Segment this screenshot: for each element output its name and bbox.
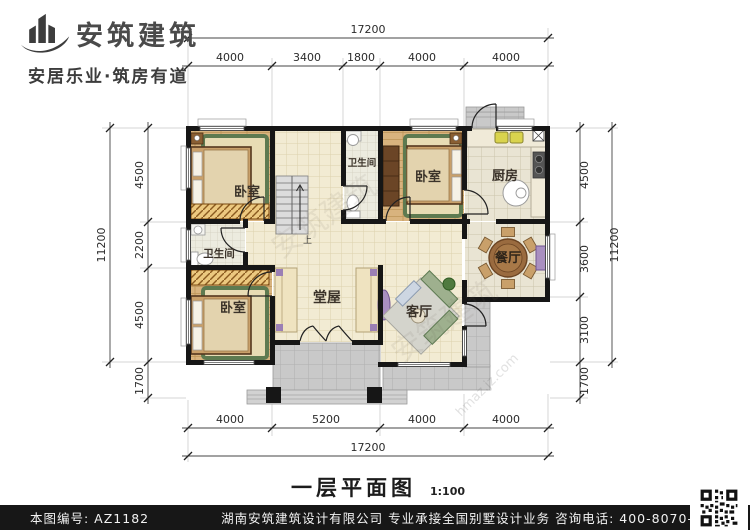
drawing-scale: 1:100 <box>430 485 465 498</box>
company-tagline: 安居乐业·筑房有道 <box>28 62 228 87</box>
dim-top-total: 17200 <box>351 23 386 36</box>
drawing-title-block: 一层平面图1:100 <box>0 472 750 508</box>
footer-bar: 本图编号: AZ1182 湖南安筑建筑设计有限公司 专业承接全国别墅设计业务 咨… <box>0 505 750 530</box>
dim-right-seg3: 1700 <box>578 367 591 395</box>
floor-plan-page: 上 <box>0 0 750 530</box>
porch-post <box>367 387 382 403</box>
porch-post <box>266 387 281 403</box>
drawing-number: 本图编号: AZ1182 <box>30 508 149 527</box>
dim-top-seg3: 4000 <box>408 51 436 64</box>
dim-right-total: 11200 <box>608 228 621 263</box>
bed-icon <box>191 288 267 358</box>
room-label-bathroom-left: 卫生间 <box>203 247 235 260</box>
company-name: 安筑建筑 <box>76 14 200 53</box>
drawing-title: 一层平面图 <box>285 472 422 508</box>
dim-left-seg2: 4500 <box>133 301 146 329</box>
dim-right-seg0: 4500 <box>578 161 591 189</box>
room-label-bathroom-top: 卫生间 <box>348 157 377 169</box>
qr-code-icon <box>699 488 739 528</box>
dim-right-seg1: 3600 <box>578 245 591 273</box>
dimension-top: 17200 4000 3400 1800 4000 4000 <box>182 23 554 70</box>
company-logo: 安筑建筑 安居乐业·筑房有道 <box>18 8 228 87</box>
dim-bottom-seg2: 4000 <box>408 413 436 426</box>
dim-top-seg4: 4000 <box>492 51 520 64</box>
dim-top-seg1: 3400 <box>293 51 321 64</box>
room-label-bedroom-bl: 卧室 <box>220 300 246 316</box>
room-label-dining: 餐厅 <box>494 250 521 266</box>
dim-bottom-seg1: 5200 <box>312 413 340 426</box>
room-label-hall: 堂屋 <box>313 289 341 306</box>
dim-left-seg0: 4500 <box>133 161 146 189</box>
room-label-bedroom-tr: 卧室 <box>415 169 441 185</box>
dim-left-seg1: 2200 <box>133 231 146 259</box>
dim-left-total: 11200 <box>95 228 108 263</box>
armchair-icon <box>536 246 546 270</box>
dim-bottom-seg3: 4000 <box>492 413 520 426</box>
company-logo-icon <box>18 8 72 58</box>
room-label-bedroom-tl: 卧室 <box>234 184 260 200</box>
dim-top-seg2: 1800 <box>347 51 375 64</box>
dim-right-seg2: 3100 <box>578 316 591 344</box>
dim-bottom-total: 17200 <box>351 441 386 454</box>
room-label-kitchen: 厨房 <box>492 168 518 184</box>
qr-code <box>690 486 748 530</box>
wardrobe-icon <box>191 204 269 219</box>
dim-left-seg3: 1700 <box>133 367 146 395</box>
plant-icon <box>443 278 455 290</box>
company-info-line: 湖南安筑建筑设计有限公司 专业承接全国别墅设计业务 咨询电话: 400-8070… <box>221 508 720 527</box>
dim-bottom-seg0: 4000 <box>216 413 244 426</box>
dimension-bottom: 4000 5200 4000 4000 17200 <box>182 413 554 460</box>
